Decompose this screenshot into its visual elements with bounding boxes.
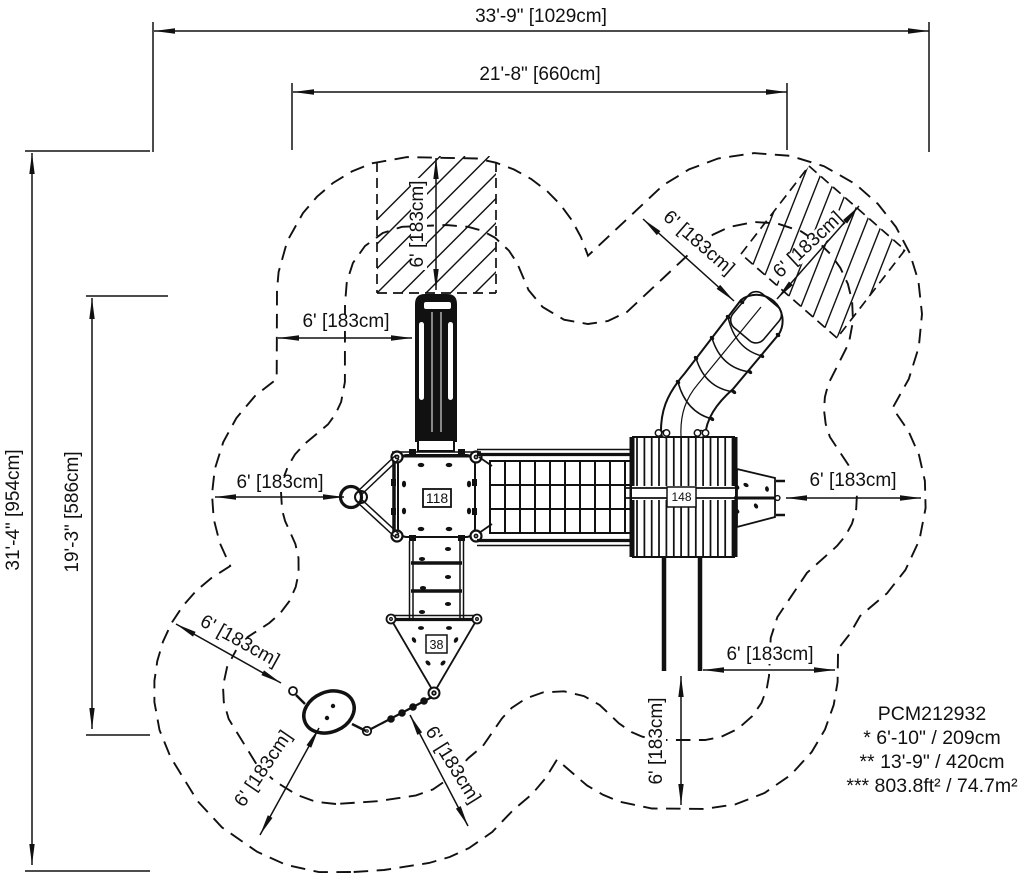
svg-text:** 13'-9" / 420cm: ** 13'-9" / 420cm — [859, 751, 1004, 773]
svg-text:6' [183cm]: 6' [183cm] — [809, 470, 896, 491]
svg-text:6' [183cm]: 6' [183cm] — [726, 644, 813, 665]
svg-text:118: 118 — [426, 490, 449, 506]
svg-text:PCM212932: PCM212932 — [878, 703, 986, 725]
svg-text:6' [183cm]: 6' [183cm] — [302, 311, 389, 332]
svg-text:6' [183cm]: 6' [183cm] — [646, 697, 667, 784]
svg-text:* 6'-10" / 209cm: * 6'-10" / 209cm — [863, 727, 1000, 749]
svg-text:21'-8" [660cm]: 21'-8" [660cm] — [479, 64, 600, 85]
svg-text:148: 148 — [671, 490, 691, 504]
svg-text:6' [183cm]: 6' [183cm] — [236, 472, 323, 493]
svg-text:19'-3" [586cm]: 19'-3" [586cm] — [62, 451, 83, 572]
svg-text:6' [183cm]: 6' [183cm] — [407, 180, 428, 267]
svg-text:31'-4" [954cm]: 31'-4" [954cm] — [3, 449, 24, 570]
svg-text:33'-9" [1029cm]: 33'-9" [1029cm] — [475, 6, 607, 27]
svg-text:*** 803.8ft² / 74.7m²: *** 803.8ft² / 74.7m² — [846, 775, 1018, 797]
svg-text:38: 38 — [430, 638, 444, 652]
